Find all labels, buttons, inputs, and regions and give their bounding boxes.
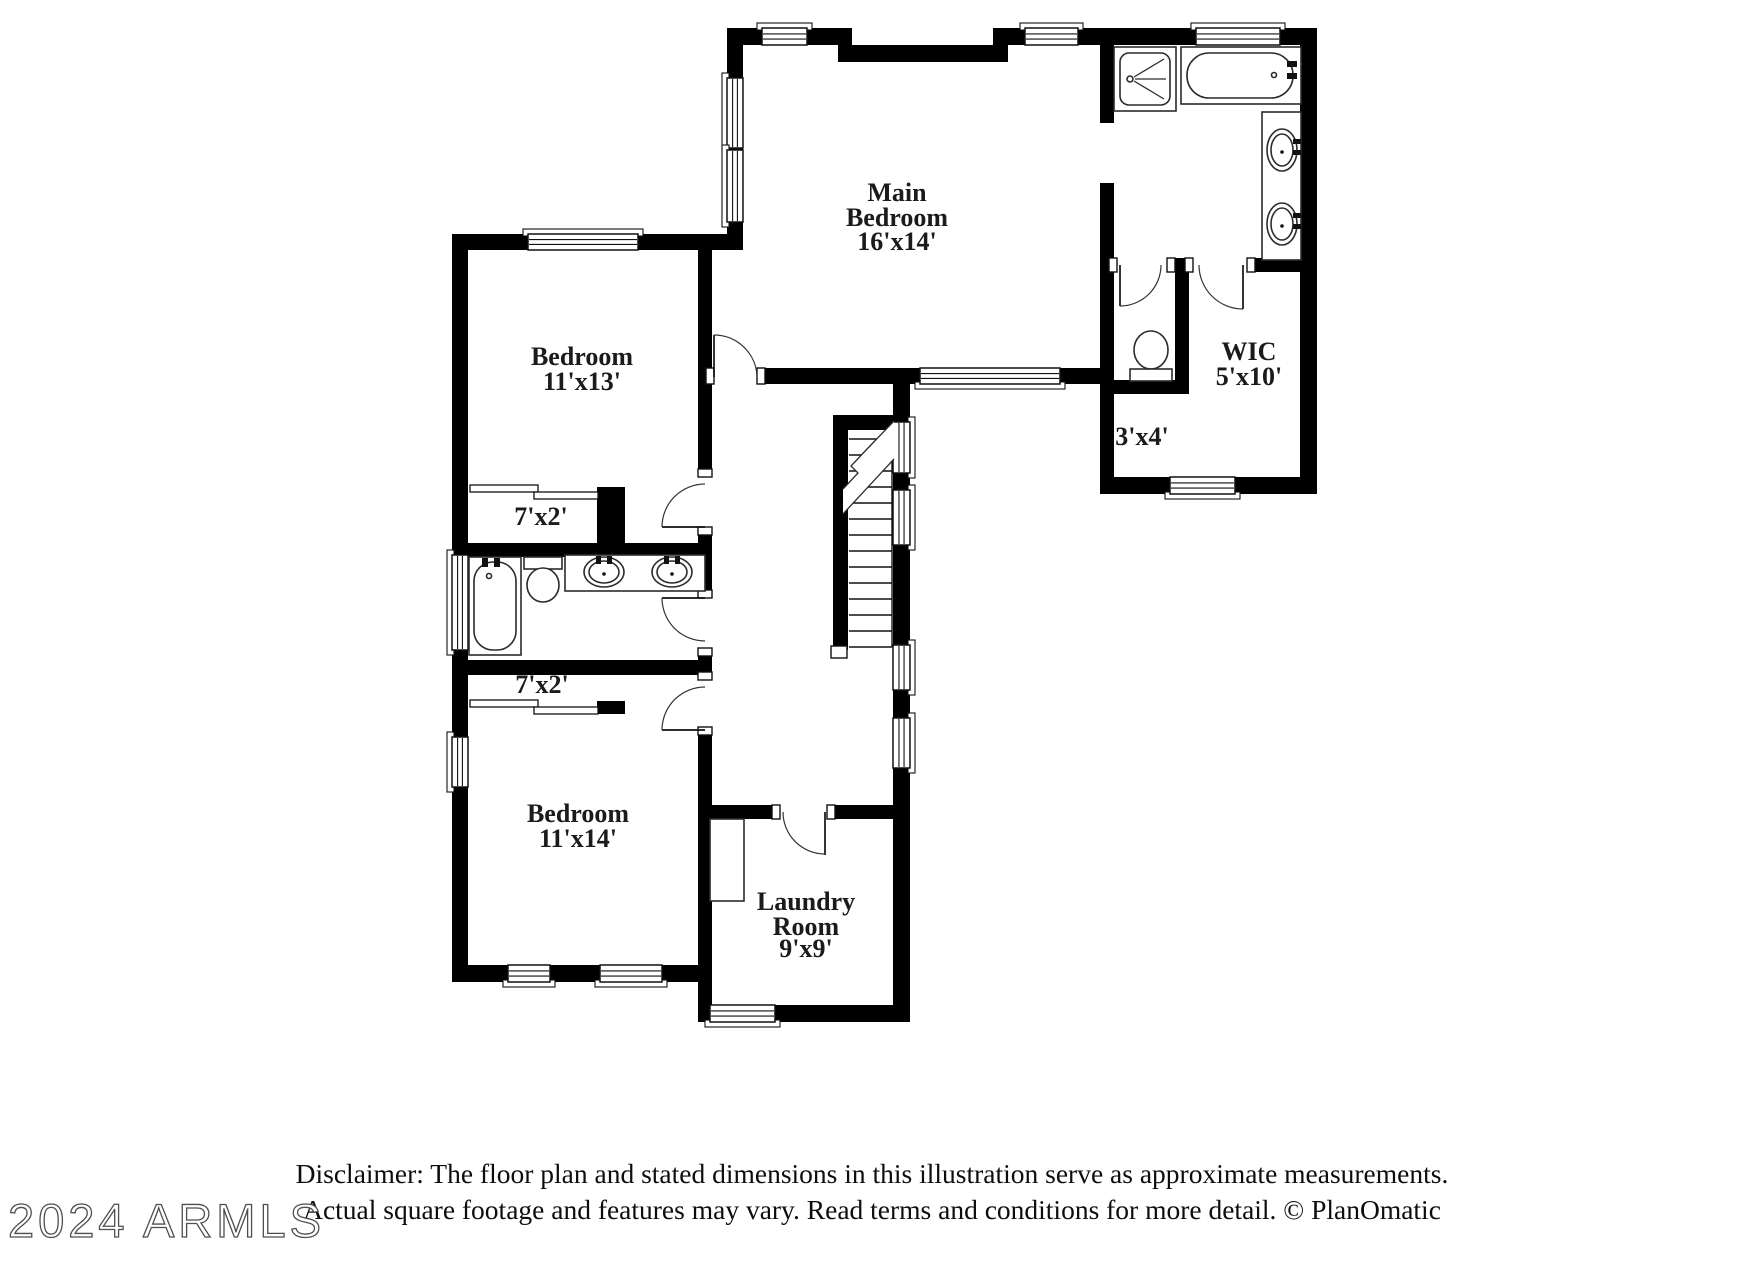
- label-bedroom-lower-dims: 11'x14': [539, 824, 617, 853]
- window: [705, 1005, 780, 1027]
- vanity-double-sink-hall: [565, 555, 705, 591]
- wall-segment: [550, 965, 600, 982]
- toilet-fixture-main: [1130, 331, 1172, 381]
- wall-segment: [698, 250, 712, 477]
- bathtub-fixture-main: [1181, 47, 1301, 104]
- wall-segment: [1100, 183, 1114, 494]
- wall-segment: [1060, 368, 1100, 384]
- door-bedroom-upper: [662, 469, 712, 535]
- wall-segment: [1100, 45, 1114, 123]
- window: [893, 485, 915, 550]
- floor-plan-drawing: Main Bedroom 16'x14' Bedroom 11'x13' WIC…: [0, 0, 1760, 1280]
- watermark-text: 2024 ARMLS: [8, 1194, 325, 1247]
- vanity-double-sink-main: [1262, 112, 1301, 260]
- wall-segment: [662, 965, 712, 982]
- window: [523, 229, 643, 250]
- closet-upper-sliding-door: [470, 485, 598, 499]
- disclaimer-line-1: Disclaimer: The floor plan and stated di…: [296, 1158, 1449, 1189]
- disclaimer-line-2: Actual square footage and features may v…: [303, 1194, 1441, 1225]
- door-hall-bathroom: [662, 590, 712, 656]
- label-bedroom-upper-dims: 11'x13': [543, 367, 621, 396]
- window: [722, 145, 743, 227]
- label-closet-lower-dims: 7'x2': [515, 670, 568, 699]
- wall-segment: [893, 768, 910, 1022]
- wall-segment: [452, 660, 712, 675]
- window: [1191, 23, 1285, 45]
- door-main-bedroom: [706, 335, 765, 384]
- window: [915, 368, 1065, 389]
- label-wic-dims: 5'x10': [1216, 362, 1282, 391]
- wall-segment: [1100, 477, 1170, 494]
- wall-segment: [452, 965, 508, 982]
- toilet-fixture-hall: [524, 557, 562, 602]
- wall-segment: [698, 805, 780, 819]
- laundry-utility-cabinet: [710, 819, 744, 901]
- wall-segment: [1100, 380, 1189, 394]
- wall-segment: [833, 415, 848, 650]
- wall-segment: [775, 1005, 910, 1022]
- door-laundry: [772, 805, 835, 855]
- wall-segment: [597, 487, 625, 557]
- wall-segment: [827, 805, 893, 819]
- label-closet-upper-dims: 7'x2': [514, 502, 567, 531]
- wall-segment: [1175, 261, 1189, 394]
- windows: [447, 23, 1285, 1027]
- window: [503, 965, 555, 987]
- label-main-bedroom-dims: 16'x14': [857, 227, 936, 256]
- window: [722, 73, 743, 153]
- footer: Disclaimer: The floor plan and stated di…: [8, 1158, 1448, 1247]
- window: [757, 23, 812, 45]
- wall-segment: [597, 701, 625, 714]
- window: [595, 965, 667, 987]
- label-toilet-room-dims: 3'x4': [1115, 422, 1168, 451]
- window: [1165, 477, 1240, 499]
- shower-fixture: [1114, 47, 1176, 111]
- door-bedroom-lower: [662, 672, 712, 735]
- wall-segment: [838, 45, 1008, 62]
- label-laundry-dims: 9'x9': [779, 934, 832, 963]
- window: [1020, 23, 1083, 45]
- door-toilet-room: [1109, 258, 1175, 306]
- wall-segment: [757, 368, 920, 384]
- wall-segment: [893, 545, 910, 645]
- stair-newel-post: [831, 646, 847, 658]
- window: [893, 713, 915, 773]
- window: [893, 640, 915, 695]
- floor-plan-page: Main Bedroom 16'x14' Bedroom 11'x13' WIC…: [0, 0, 1760, 1280]
- door-wic: [1185, 258, 1255, 309]
- wall-segment: [893, 384, 910, 422]
- wall-segment: [1235, 477, 1317, 494]
- stair-break-line: [843, 421, 894, 514]
- closet-lower-sliding-door: [470, 700, 598, 714]
- bathtub-fixture-hall: [469, 557, 521, 655]
- window: [893, 417, 915, 478]
- window: [447, 550, 468, 655]
- window: [447, 732, 468, 792]
- fixtures: [469, 47, 1301, 901]
